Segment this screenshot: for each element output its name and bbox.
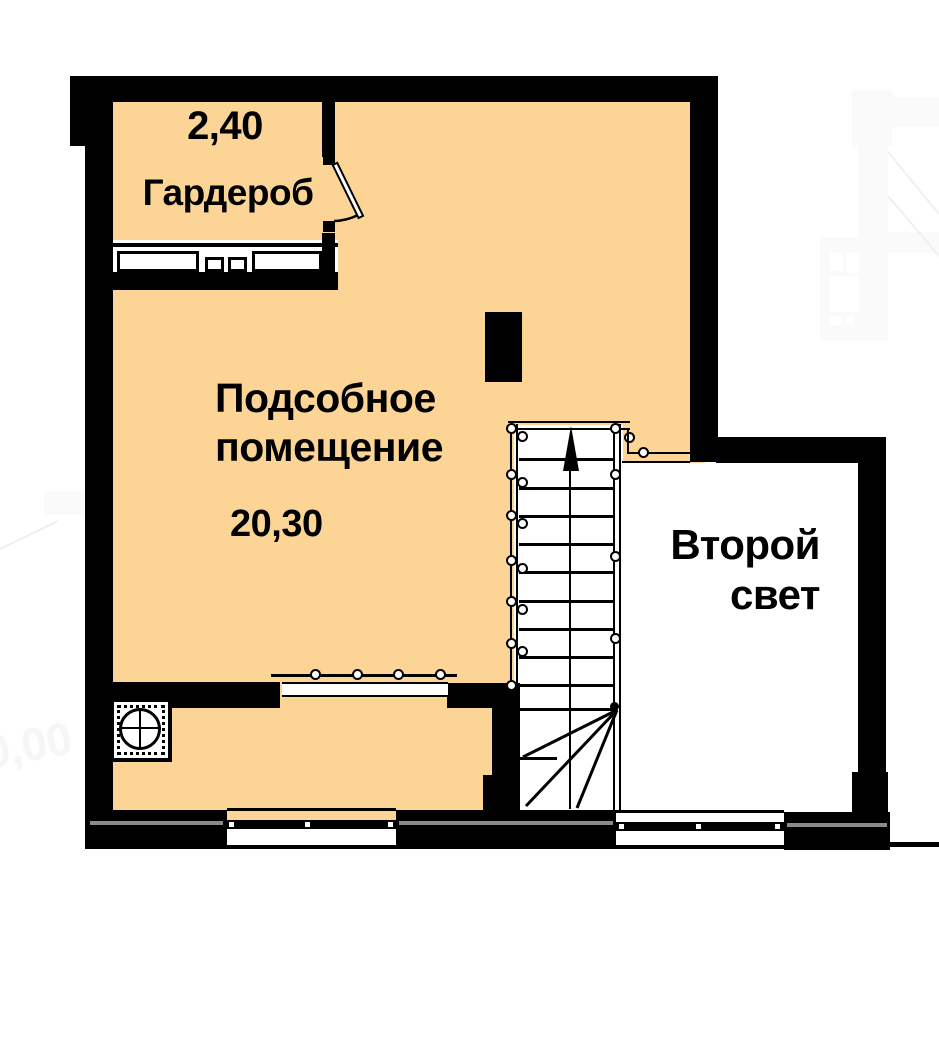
second-light-void: [622, 463, 858, 812]
railing-post: [517, 477, 528, 488]
ghost-elevation-label: 0,00: [0, 711, 76, 779]
window-sill-line: [399, 821, 613, 825]
vent-cross-vertical: [139, 709, 141, 749]
railing-post: [517, 518, 528, 529]
wall-bottom-middle: [396, 810, 616, 848]
ghost-opening: [830, 253, 843, 271]
window-sill-line: [90, 821, 223, 825]
ghost-opening: [846, 316, 854, 325]
railing-post: [610, 423, 621, 434]
wardrobe-partition-lower: [322, 233, 335, 277]
wall-corner-flange: [70, 76, 86, 146]
railing-post: [517, 646, 528, 657]
wardrobe-shelf-box: [117, 251, 199, 272]
stair-enclosure-wall-vertical-wide: [483, 775, 520, 812]
ghost-wall: [44, 491, 86, 515]
wall-right-upper: [690, 76, 718, 462]
window-mullion: [696, 824, 701, 829]
stair-tread: [519, 708, 614, 711]
plinth-line-right: [888, 842, 939, 847]
railing-rail: [271, 674, 457, 677]
vent-cross-horizontal: [121, 727, 161, 729]
wardrobe-drawer: [228, 257, 247, 272]
railing-post: [506, 423, 517, 434]
wall-bottom-left: [85, 810, 227, 848]
railing-post: [517, 431, 528, 442]
stair-center-line: [569, 437, 571, 809]
railing-post: [610, 469, 621, 480]
railing-post: [638, 447, 649, 458]
ghost-opening: [830, 316, 843, 325]
window-mullion: [775, 824, 780, 829]
stair-tread: [519, 543, 614, 546]
railing-post: [393, 669, 404, 680]
railing-post: [610, 633, 621, 644]
stair-tread: [519, 487, 614, 490]
railing-post: [506, 555, 517, 566]
window-frame-top: [616, 810, 784, 813]
stair-stringer-right: [619, 424, 621, 812]
railing-post: [352, 669, 363, 680]
stair-tread: [519, 571, 614, 574]
second-light-name-label: Второй свет: [630, 520, 820, 620]
wall-left: [85, 76, 113, 848]
railing-post: [506, 680, 517, 691]
ghost-diagonal: [0, 521, 58, 549]
railing-post: [506, 510, 517, 521]
window-mullion: [619, 824, 624, 829]
ghost-wall: [858, 146, 888, 238]
stair-tread: [519, 628, 614, 631]
window-frame-top: [227, 808, 396, 811]
stair-top-rail: [508, 421, 630, 423]
wall-second-light-right: [858, 437, 886, 772]
utility-room-area-label: 20,30: [230, 503, 323, 546]
ghost-opening: [847, 253, 859, 273]
wardrobe-partition-upper: [322, 101, 335, 157]
railing-post: [610, 551, 621, 562]
wardrobe-shelf-box: [252, 251, 322, 272]
window-mullion: [388, 822, 393, 827]
railing-post: [506, 469, 517, 480]
ghost-wall: [892, 97, 939, 127]
stair-tread: [519, 600, 614, 603]
second-light-edge-line: [622, 461, 690, 463]
window-mullion: [305, 822, 310, 827]
wardrobe-drawer: [205, 257, 224, 272]
stair-stringer-right: [613, 424, 615, 812]
utility-room-name-label: Подсобное помещение: [215, 374, 495, 472]
wardrobe-bottom-wall: [113, 272, 338, 290]
wardrobe-rod-line: [113, 243, 338, 247]
railing-post: [506, 596, 517, 607]
stair-winder-tread: [519, 757, 557, 760]
wardrobe-area-label: 2,40: [150, 104, 300, 149]
wall-top: [76, 76, 716, 102]
flue-block: [485, 312, 522, 382]
railing-post: [506, 638, 517, 649]
facade-bottom-line: [85, 845, 890, 849]
stair-tread: [519, 684, 614, 687]
stair-tread: [519, 458, 614, 461]
window-sill-line: [787, 823, 887, 827]
window-sash: [227, 820, 396, 829]
wardrobe-name-label: Гардероб: [113, 172, 343, 214]
stair-tread: [519, 515, 614, 518]
ghost-opening: [830, 276, 859, 312]
stair-tread: [519, 656, 614, 659]
landing-rail-vertical: [627, 429, 629, 454]
floor-plan-canvas: 0,00: [0, 0, 939, 1039]
landing-rail-horizontal: [627, 452, 690, 454]
railing-post: [310, 669, 321, 680]
window-mullion: [229, 822, 234, 827]
railing-post: [435, 669, 446, 680]
door-latch-block: [323, 221, 335, 232]
railing-post: [517, 604, 528, 615]
parapet-band: [282, 682, 448, 697]
ghost-wall: [852, 90, 892, 146]
railing-post-filled: [610, 702, 619, 711]
ghost-diagonal: [888, 152, 939, 214]
railing-post: [517, 563, 528, 574]
railing-post: [624, 432, 635, 443]
